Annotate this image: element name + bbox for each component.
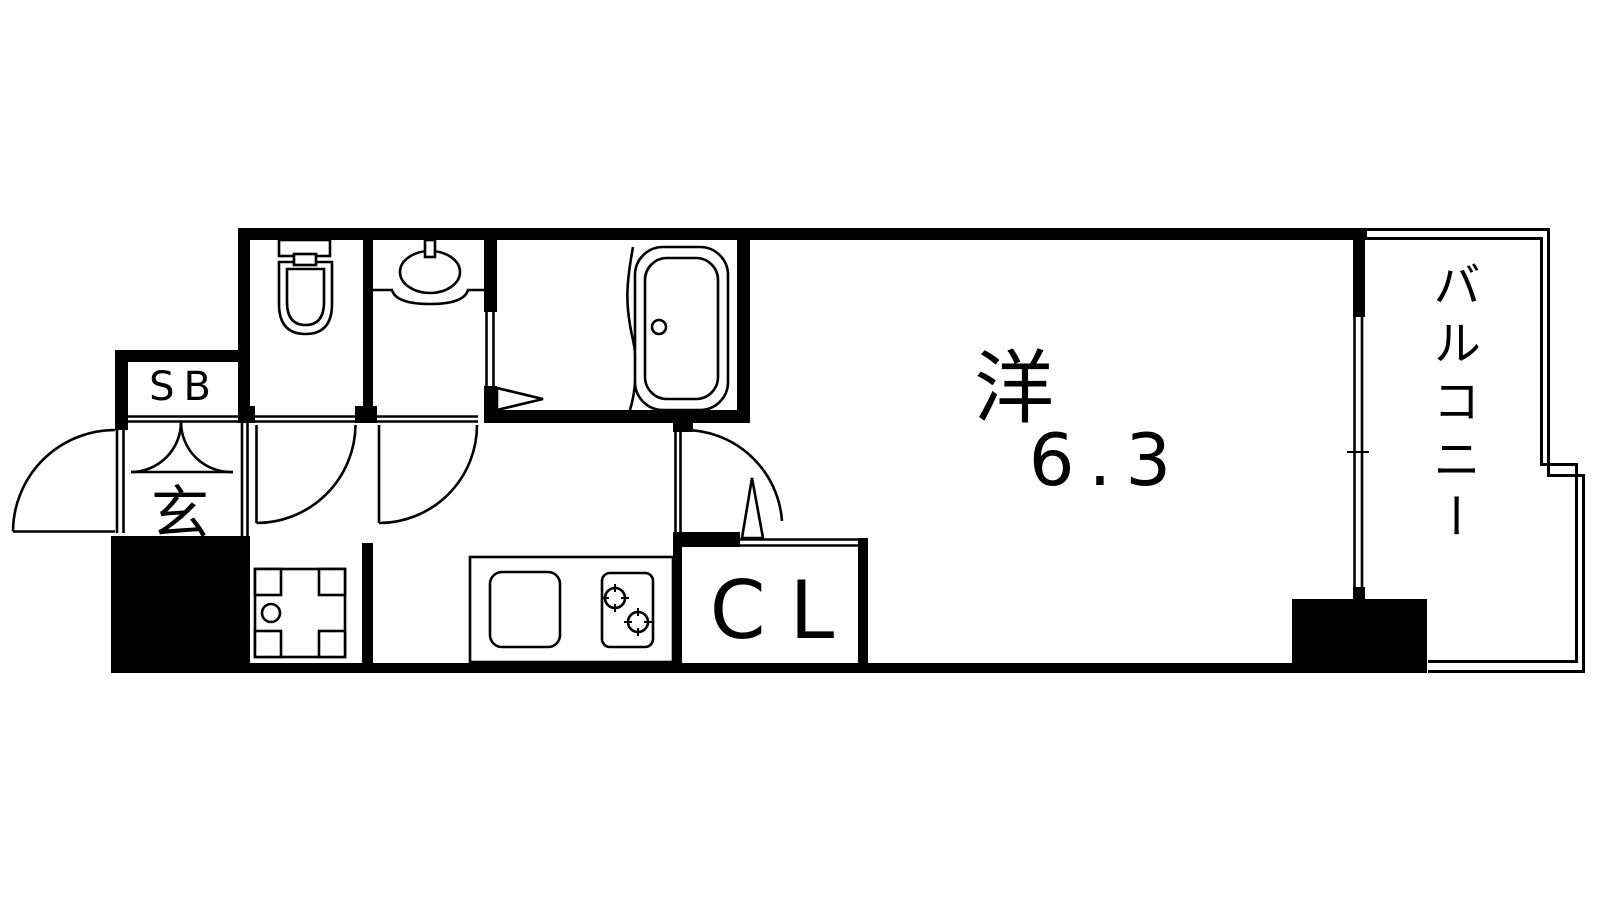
wall-toilet-wash-divider — [363, 240, 373, 412]
kitchen-counter-icon — [470, 557, 673, 662]
washbasin-icon — [373, 240, 484, 304]
shoe-box-arc-left — [131, 422, 181, 472]
closet-label: CL — [662, 564, 882, 657]
floor-plan-page: SB 玄 CL 洋 6.3 バルコニー — [0, 0, 1600, 900]
wall-bottom — [111, 663, 1427, 673]
wall-washer-stub — [362, 543, 373, 663]
entrance-door — [13, 430, 124, 533]
entrance-label: 玄 — [120, 466, 240, 550]
wall-bath-door-hinge — [484, 386, 497, 412]
washroom-door-arc — [379, 425, 477, 523]
washroom-door — [379, 425, 477, 523]
wall-cl-top — [673, 532, 740, 547]
bathroom-door-wedge — [497, 388, 543, 410]
entrance-door-arc — [13, 430, 115, 532]
floor-plan-canvas — [0, 0, 1600, 900]
balcony-label: バルコニー — [1424, 260, 1480, 610]
western-room-size-label: 6.3 — [998, 418, 1202, 502]
washing-machine-pan-icon — [255, 569, 345, 657]
shoe-box-label: SB — [118, 364, 242, 410]
structural-pillar — [1292, 599, 1427, 672]
pan-drain — [262, 604, 280, 622]
main-room-door-wedge — [742, 478, 763, 538]
shoe-box-arc-right — [181, 422, 233, 472]
wall-bath-bottom — [484, 410, 750, 423]
wall-top — [238, 228, 1367, 240]
entrance-solid-block — [111, 536, 250, 663]
main-room-door — [682, 430, 782, 538]
stove-top — [602, 573, 653, 647]
toilet-icon — [279, 240, 332, 334]
toilet-flush-detail — [294, 254, 316, 265]
shoe-box-doors — [131, 422, 233, 472]
bathtub-drain — [652, 320, 666, 334]
main-room-door-arc — [682, 430, 782, 521]
wall-window-top-seg — [1353, 228, 1365, 317]
wall-window-bottom-stub — [1353, 587, 1365, 601]
washbasin-tap — [425, 240, 435, 257]
kitchen-sink — [490, 572, 560, 647]
sliding-window — [1347, 317, 1369, 587]
wall-hall-chunk-b — [355, 406, 377, 423]
toilet-bowl-inner — [287, 269, 324, 325]
bathroom-door — [497, 388, 543, 410]
wall-wash-bath-upper — [484, 228, 497, 312]
bathtub-icon — [627, 247, 728, 410]
wall-sb-top — [115, 350, 248, 362]
wall-bath-east — [737, 228, 750, 423]
toilet-door-arc — [257, 425, 356, 523]
toilet-door — [257, 425, 356, 523]
